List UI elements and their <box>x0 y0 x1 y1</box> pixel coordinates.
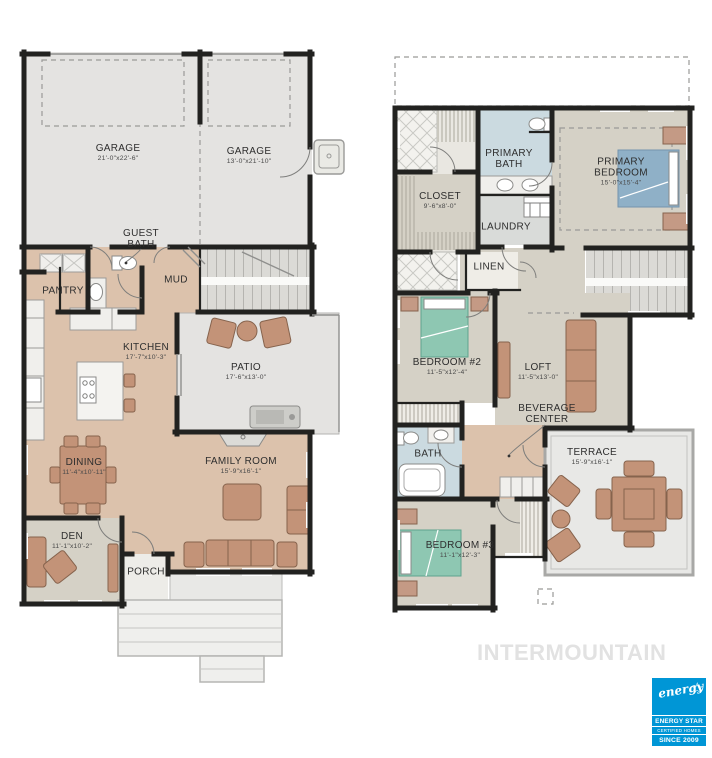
toilet <box>404 432 419 444</box>
terrace-table <box>612 477 666 531</box>
sofa <box>206 540 274 566</box>
energy-star-line1: ENERGY STAR <box>652 716 706 727</box>
room-label-beverage-center: BEVERAGE CENTER <box>504 404 590 426</box>
armchair <box>277 542 297 567</box>
room-label-primary-bedroom: PRIMARY BEDROOM 15'-0"x15'-4" <box>581 158 661 187</box>
energy-star-badge: energy ☆ ENERGY STAR CERTIFIED HOMES SIN… <box>652 678 706 746</box>
pantry-cabinets <box>40 254 85 272</box>
nightstand <box>397 581 417 596</box>
sink <box>434 430 448 440</box>
room-label-dining: DINING 11'-4"x10'-11" <box>62 458 106 476</box>
room-label-garage-right: GARAGE 13'-0"x21'-10" <box>227 147 272 165</box>
side-table <box>552 510 570 528</box>
room-label-bedroom2: BEDROOM #2 11'-5"x12'-4" <box>413 358 482 376</box>
room-label-mud: MUD <box>164 276 188 287</box>
room-label-terrace: TERRACE 15'-9"x16'-1" <box>567 448 617 466</box>
nightstand <box>663 127 688 144</box>
washer-dryer <box>524 197 550 217</box>
room-label-kitchen: KITCHEN 17'-7"x10'-3" <box>123 343 169 361</box>
second-floor-plan <box>392 57 694 612</box>
equipment-pad <box>314 140 344 174</box>
energy-star-icon: ☆ <box>691 679 704 697</box>
room-label-bedroom3: BEDROOM #3 11'-1"x12'-3" <box>426 541 495 559</box>
console <box>498 342 510 398</box>
toilet <box>529 118 545 130</box>
builder-watermark: INTERMOUNTAIN <box>477 640 711 666</box>
room-label-guest-bath: GUEST BATH <box>117 229 165 251</box>
nightstand <box>401 297 418 311</box>
bedroom3-closet <box>520 499 545 557</box>
den-sofa <box>27 537 46 587</box>
nightstand <box>663 213 688 230</box>
room-label-den: DEN 11'-1"x10'-2" <box>52 532 92 550</box>
sink <box>90 284 103 301</box>
room-label-porch: PORCH <box>127 568 165 579</box>
floor-plan-sheet: GARAGE 21'-0"x22'-6" GARAGE 13'-0"x21'-1… <box>0 0 712 758</box>
double-vanity <box>480 176 552 194</box>
bedroom2-closet <box>395 403 462 423</box>
roof-outline-dashed <box>395 57 689 106</box>
room-label-patio: PATIO 17'-6"x13'-0" <box>226 363 267 381</box>
beverage-center-counter <box>500 477 544 497</box>
room-label-pantry: PANTRY <box>42 287 83 298</box>
room-label-closet: CLOSET 9'-6"x8'-0" <box>419 192 461 210</box>
room-label-linen: LINEN <box>474 263 505 274</box>
toilet-tank <box>397 432 404 445</box>
room-label-family-room: FAMILY ROOM 15'-9"x16'-1" <box>205 457 277 475</box>
ottoman <box>223 484 261 520</box>
room-label-primary-bath: PRIMARY BATH <box>479 149 539 171</box>
room-label-bath: BATH <box>414 450 441 461</box>
column-dashed <box>538 589 553 604</box>
room-label-loft: LOFT 11'-5"x13'-0" <box>518 363 558 381</box>
first-floor-plan <box>20 52 344 682</box>
den-bench <box>108 544 118 592</box>
loft-sofa <box>566 320 596 412</box>
room-label-garage-left: GARAGE 21'-0"x22'-6" <box>96 144 141 162</box>
energy-star-line2: CERTIFIED HOMES <box>652 727 706 736</box>
nightstand <box>471 297 488 311</box>
armchair <box>184 542 204 567</box>
bar-stool <box>124 399 135 412</box>
porch-floor <box>122 554 168 606</box>
energy-star-logo-art: energy ☆ <box>652 678 706 716</box>
room-label-laundry: LAUNDRY <box>481 223 531 234</box>
bar-stool <box>124 374 135 387</box>
sink <box>497 179 513 191</box>
toilet <box>120 257 137 270</box>
patio-table <box>237 321 257 341</box>
energy-star-line3: SINCE 2009 <box>652 735 706 746</box>
patio-chair <box>259 316 291 348</box>
